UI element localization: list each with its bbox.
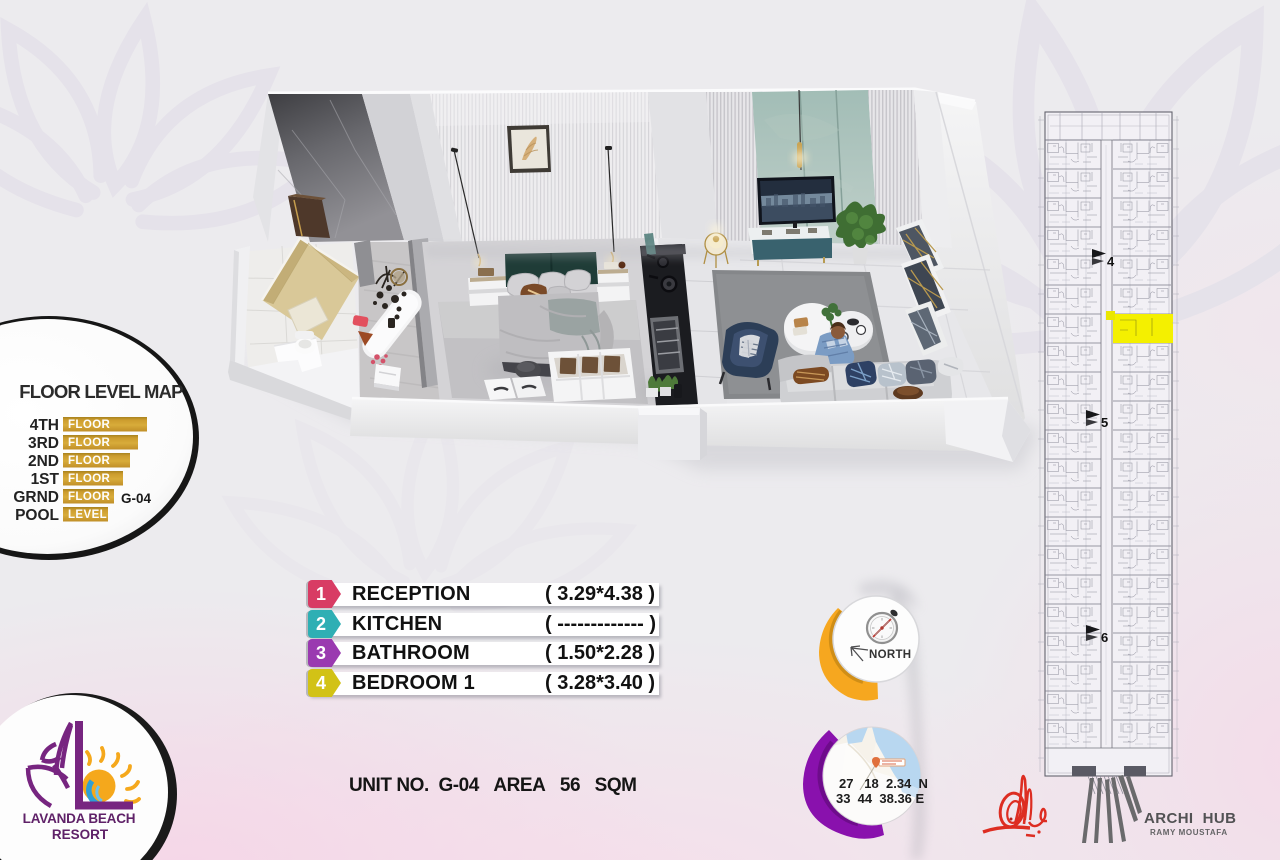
svg-text:ARCHI HUB: ARCHI HUB	[1144, 810, 1236, 827]
svg-text:RAMY MOUSTAFA: RAMY MOUSTAFA	[1150, 828, 1228, 837]
